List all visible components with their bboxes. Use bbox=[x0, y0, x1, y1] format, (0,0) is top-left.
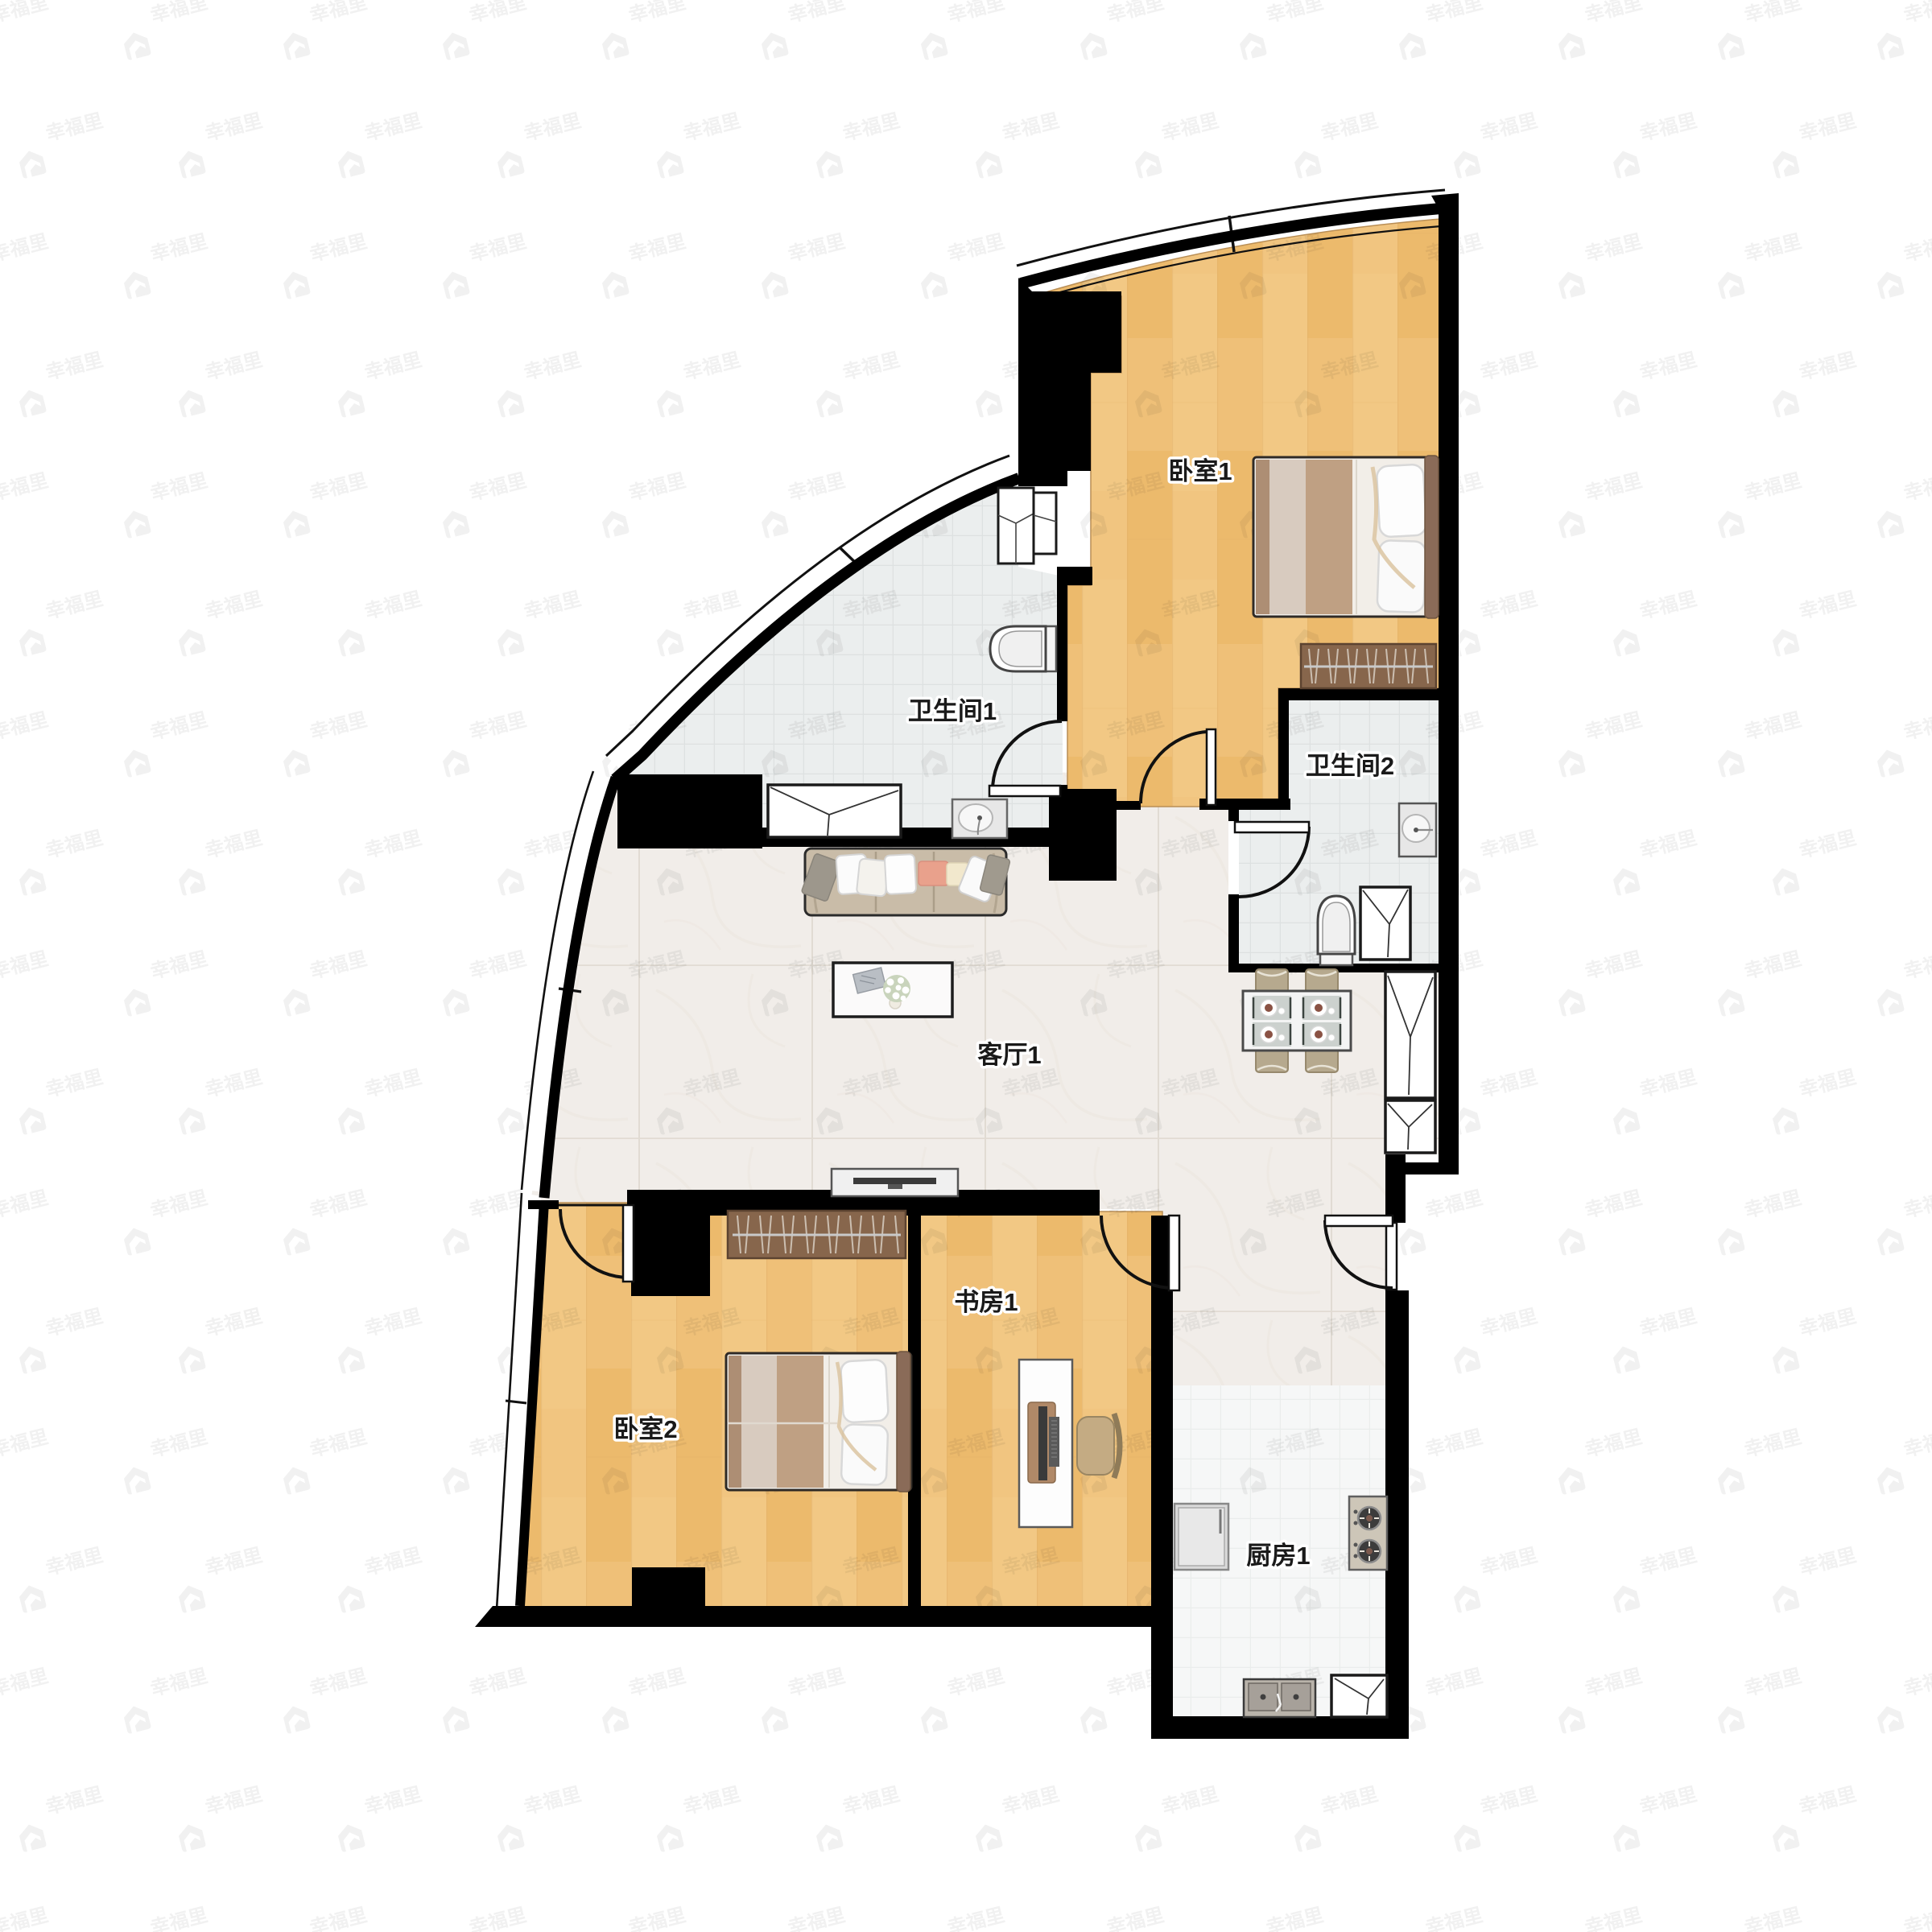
svg-text:卫生间2: 卫生间2 bbox=[1306, 752, 1394, 780]
svg-text:卧室2: 卧室2 bbox=[613, 1415, 677, 1443]
svg-text:厨房1: 厨房1 bbox=[1246, 1542, 1310, 1570]
svg-text:卧室1: 卧室1 bbox=[1168, 457, 1232, 485]
svg-text:书房1: 书房1 bbox=[954, 1288, 1018, 1316]
svg-text:卫生间1: 卫生间1 bbox=[908, 697, 997, 725]
svg-text:客厅1: 客厅1 bbox=[977, 1041, 1041, 1069]
